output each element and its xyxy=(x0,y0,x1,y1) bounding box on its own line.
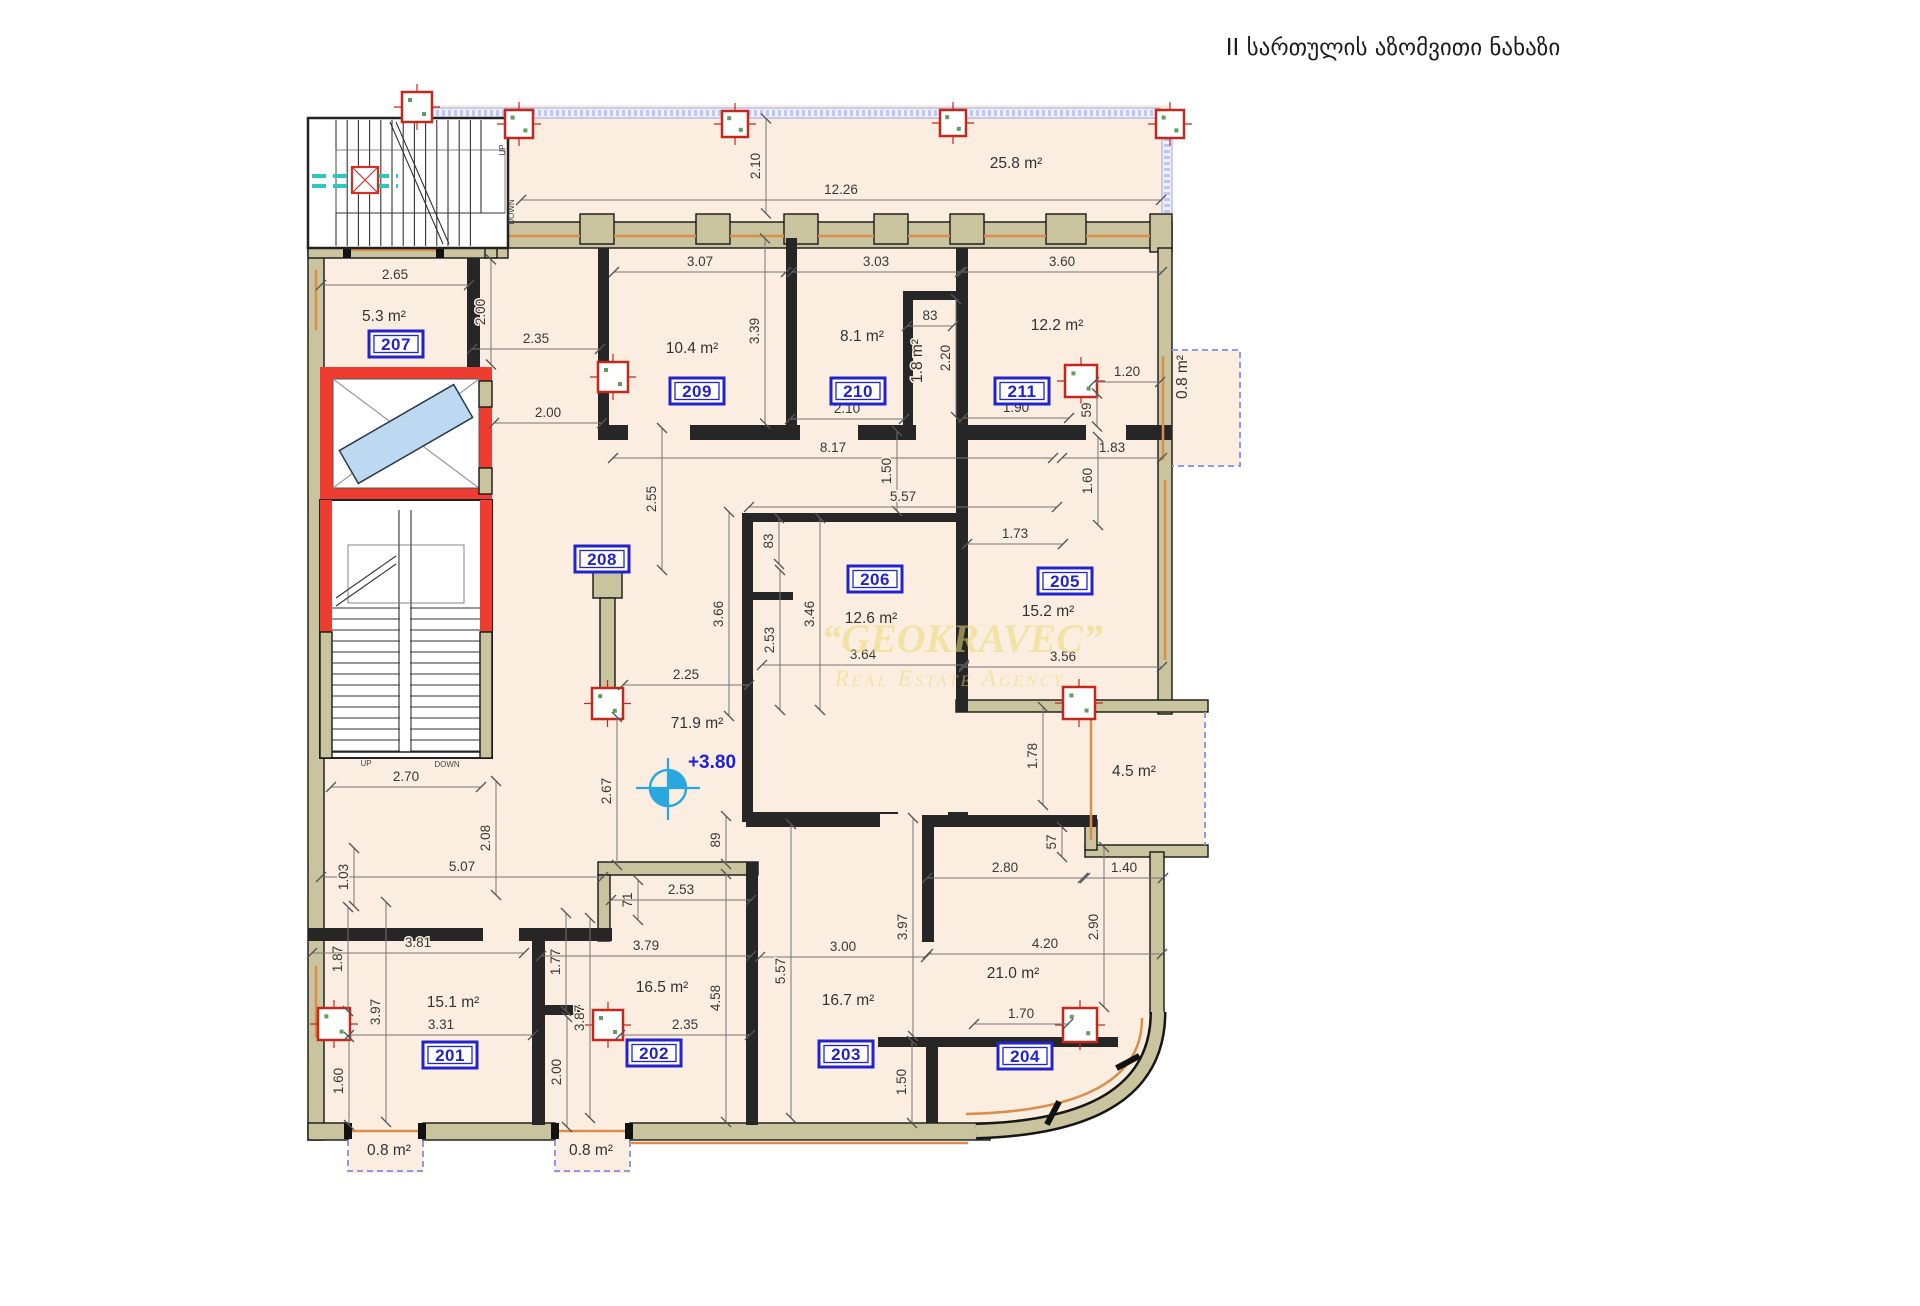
dimension-label: 1.60 xyxy=(331,1068,346,1094)
room-area: 15.1 m² xyxy=(427,994,480,1011)
room-number-box: 208 xyxy=(575,546,629,572)
dimension-label: 3.60 xyxy=(1049,254,1075,269)
dimension-label: 1.78 xyxy=(1025,743,1040,769)
room-number-box: 207 xyxy=(369,331,423,357)
room-number: 206 xyxy=(860,570,890,589)
stairwell-mid xyxy=(320,500,492,758)
dimension-label: 1.77 xyxy=(548,949,563,975)
dimension-label: 2.00 xyxy=(535,405,561,420)
area-label: 1.8 m² xyxy=(909,339,926,383)
room-area: 8.1 m² xyxy=(840,328,884,345)
room-number-box: 205 xyxy=(1038,568,1092,594)
room-number: 205 xyxy=(1050,572,1080,591)
dimension-label: 2.53 xyxy=(762,627,777,653)
room-number-box: 206 xyxy=(848,566,902,592)
dimension-label: 3.31 xyxy=(428,1017,454,1032)
structural-column xyxy=(584,680,631,727)
dimension-label: 1.50 xyxy=(879,458,894,484)
dimension-label: 2.53 xyxy=(668,882,694,897)
stair-door-marker xyxy=(352,167,378,193)
dimension-label: 2.10 xyxy=(748,153,763,179)
room-number: 208 xyxy=(587,550,617,569)
stair-direction-label: DOWN xyxy=(507,199,516,225)
dimension-label: 8.17 xyxy=(820,440,846,455)
dimension-label: 1.40 xyxy=(1111,860,1137,875)
dimension-label: 57 xyxy=(1044,834,1059,849)
room-number-box: 202 xyxy=(627,1040,681,1066)
area-label: 25.8 m² xyxy=(990,155,1043,172)
room-number-box: 209 xyxy=(670,378,724,404)
dimension-label: 4.20 xyxy=(1032,936,1058,951)
dimension-label: 2.20 xyxy=(938,345,953,371)
watermark-line1: “GEOKRAVEC” xyxy=(821,616,1103,661)
room-number: 207 xyxy=(381,335,411,354)
dimension-label: 3.00 xyxy=(830,939,856,954)
dimension-label: 1.73 xyxy=(1002,526,1028,541)
dimension-label: 3.81 xyxy=(405,935,431,950)
room-number-box: 203 xyxy=(819,1041,873,1067)
structural-column xyxy=(1055,1000,1105,1050)
dimension-label: 2.80 xyxy=(992,860,1018,875)
room-number-box: 211 xyxy=(995,378,1049,404)
room-area: 12.2 m² xyxy=(1031,317,1084,334)
dimension-label: 5.57 xyxy=(773,958,788,984)
structural-column xyxy=(590,354,636,400)
area-label: 71.9 m² xyxy=(671,715,724,732)
structural-column xyxy=(585,1002,631,1048)
stair-direction-label: DOWN xyxy=(434,760,460,769)
floor-plan-canvas: 2.1012.262.653.073.033.602.002.35832.203… xyxy=(0,0,1920,1306)
dimension-label: 1.20 xyxy=(1114,364,1140,379)
room-number: 210 xyxy=(843,382,873,401)
room-number-box: 201 xyxy=(423,1042,477,1068)
area-label: 0.8 m² xyxy=(569,1142,613,1159)
room-number: 211 xyxy=(1008,382,1037,401)
dimension-label: 4.58 xyxy=(708,985,723,1011)
dimension-label: 1.03 xyxy=(336,864,351,890)
dimension-label: 1.83 xyxy=(1099,440,1125,455)
dimension-label: 2.70 xyxy=(393,769,419,784)
dimension-label: 3.03 xyxy=(863,254,889,269)
dimension-label: 1.50 xyxy=(894,1069,909,1095)
dimension-label: 2.35 xyxy=(672,1017,698,1032)
elevator-shaft xyxy=(320,367,492,500)
room-number: 202 xyxy=(639,1044,669,1063)
room-number: 203 xyxy=(831,1045,861,1064)
dimension-label: 3.87 xyxy=(572,1005,587,1031)
room-area: 10.4 m² xyxy=(666,340,719,357)
area-label: 0.8 m² xyxy=(367,1142,411,1159)
dimension-label: 89 xyxy=(708,832,723,847)
stair-direction-label: UP xyxy=(360,759,371,768)
room-area: 16.7 m² xyxy=(822,992,875,1009)
structural-column xyxy=(1057,357,1105,405)
page-title: II სართულის აზომვითი ნახაზი xyxy=(1226,35,1560,61)
room-area: 21.0 m² xyxy=(987,965,1040,982)
room-number-box: 204 xyxy=(998,1043,1052,1069)
dimension-label: 5.07 xyxy=(449,859,475,874)
stairwell-top xyxy=(308,118,508,248)
dimension-label: 2.00 xyxy=(549,1059,564,1085)
dimension-label: 1.60 xyxy=(1080,468,1095,494)
dimension-label: 3.66 xyxy=(711,601,726,627)
dimension-label: 3.79 xyxy=(633,938,659,953)
dimension-label: 2.00 xyxy=(473,299,488,325)
dimension-label: 3.07 xyxy=(687,254,713,269)
dimension-label: 2.25 xyxy=(673,667,699,682)
watermark: “GEOKRAVEC” Real Estate Agency xyxy=(821,616,1103,691)
elevation-mark: +3.80 xyxy=(688,752,736,773)
area-label: 4.5 m² xyxy=(1112,763,1156,780)
room-area: 5.3 m² xyxy=(362,308,406,325)
dimension-label: 2.90 xyxy=(1086,914,1101,940)
dimension-label: 2.67 xyxy=(599,778,614,804)
watermark-line2: Real Estate Agency xyxy=(834,666,1066,691)
dimension-label: 2.08 xyxy=(478,825,493,851)
room-area: 16.5 m² xyxy=(636,979,689,996)
dimension-label: 83 xyxy=(922,308,937,323)
dimension-label: 1.87 xyxy=(330,946,345,972)
dimension-label: 83 xyxy=(761,533,776,548)
stair-direction-label: UP xyxy=(498,144,507,155)
dimension-label: 2.55 xyxy=(644,486,659,512)
room-number-box: 210 xyxy=(831,378,885,404)
dimension-label: 12.26 xyxy=(824,182,858,197)
area-label: 0.8 m² xyxy=(1174,355,1191,399)
dimension-label: 5.57 xyxy=(890,489,916,504)
dimension-label: 3.97 xyxy=(368,999,383,1025)
dimension-label: 3.46 xyxy=(802,601,817,627)
structural-column xyxy=(310,1000,358,1048)
dimension-label: 2.65 xyxy=(382,267,408,282)
room-number: 209 xyxy=(682,382,712,401)
dimension-label: 3.97 xyxy=(895,914,910,940)
structural-column xyxy=(394,84,440,130)
room-number: 201 xyxy=(435,1046,465,1065)
dimension-label: 1.70 xyxy=(1008,1006,1034,1021)
dimension-label: 3.39 xyxy=(747,318,762,344)
room-number: 204 xyxy=(1010,1047,1040,1066)
dimension-label: 2.35 xyxy=(523,331,549,346)
floor-plan-drawing: 2.1012.262.653.073.033.602.002.35832.203… xyxy=(0,0,1920,1306)
dimension-label: 59 xyxy=(1079,402,1094,417)
